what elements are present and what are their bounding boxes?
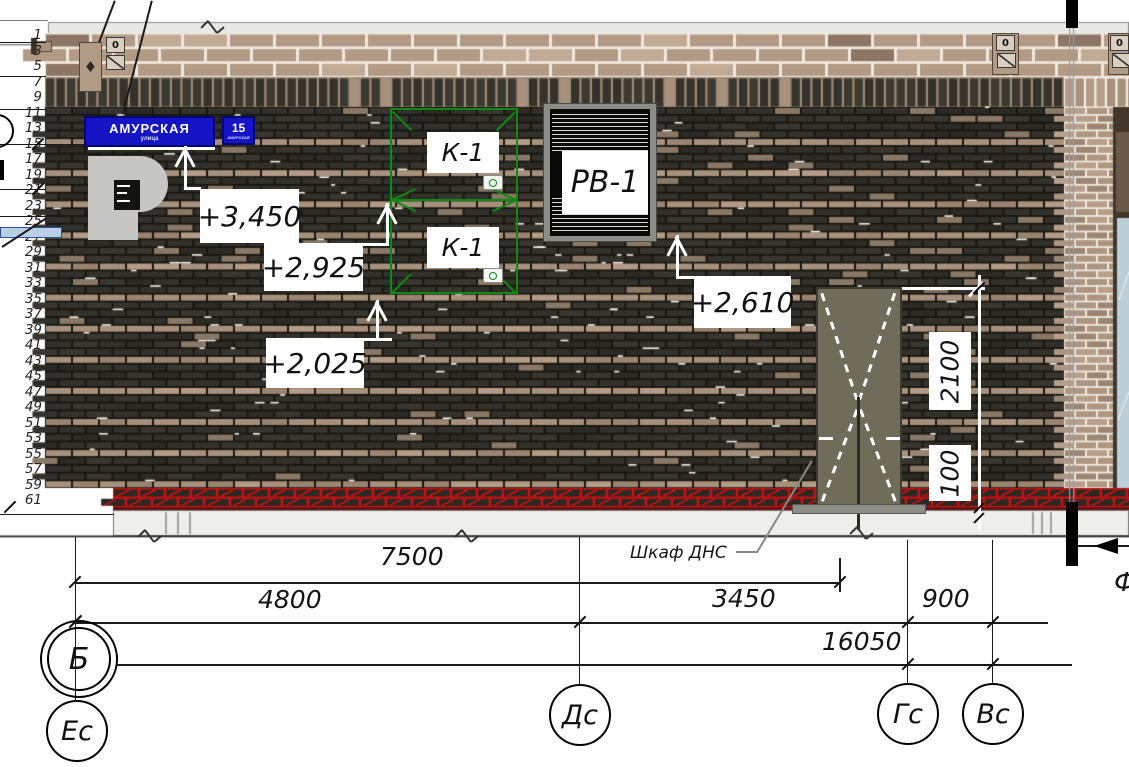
break-mark <box>455 527 479 543</box>
diagonal-marker-icon <box>1112 53 1129 68</box>
elev-leader <box>361 243 389 246</box>
zero-marker-label: 0 <box>1002 38 1009 49</box>
house-number-sign: 15 АМУРСКАЯ <box>222 116 255 145</box>
course-number: 39 <box>0 322 42 338</box>
house-number: 15 <box>232 121 245 135</box>
cabinet-handle-mark <box>819 437 833 440</box>
zero-marker-box: 0 <box>106 37 125 53</box>
elevation-mark: +3,450 <box>200 189 299 243</box>
logo-text-line <box>117 200 130 202</box>
axis-bubble-es: Ес <box>46 700 108 762</box>
logo-inner-plate <box>114 180 140 210</box>
diagonal-marker-icon <box>997 53 1016 68</box>
dim-100: 100 <box>929 445 971 501</box>
break-mark <box>850 524 874 540</box>
dim-2100: 2100 <box>929 332 971 410</box>
trident-ornament-icon: ♦︎ <box>79 42 102 92</box>
street-sign-name: АМУРСКАЯ <box>109 121 190 136</box>
course-number: 1 <box>0 27 42 43</box>
axis-bubble-b: Б <box>47 627 111 691</box>
logo-text-line <box>117 192 127 194</box>
course-number: 45 <box>0 368 42 384</box>
level-line <box>0 20 48 21</box>
course-number: 5 <box>0 58 42 74</box>
fastener-chip <box>483 268 503 283</box>
elevation-mark: +2,925 <box>264 243 363 291</box>
dim-100-label: 100 <box>936 449 965 497</box>
elevation-mark: +2,025 <box>266 338 364 388</box>
cabinet-leader-label: Шкаф ДНС <box>630 543 727 563</box>
course-number: 33 <box>0 275 42 291</box>
logo-p-emblem <box>88 156 162 240</box>
course-number: 49 <box>0 399 42 415</box>
course-number: 55 <box>0 446 42 462</box>
logo-text-line <box>117 185 130 187</box>
k1-label-top: К-1 <box>427 132 499 173</box>
zero-marker-label: 0 <box>112 40 119 51</box>
course-number: 51 <box>0 415 42 431</box>
axis-bubble-vs: Вс <box>962 683 1024 745</box>
facade-elevation-drawing: 1357911131517192123252729313335373941434… <box>0 0 1129 767</box>
course-number: 59 <box>0 477 42 493</box>
cabinet-handle-mark <box>886 437 900 440</box>
section-arrow-icon <box>1094 538 1118 554</box>
brick-course-number-column: 1357911131517192123252729313335373941434… <box>0 0 42 520</box>
dim-extension <box>839 558 841 592</box>
dim-line-vertical <box>978 275 981 530</box>
dim-7500: 7500 <box>380 542 444 571</box>
course-number: 47 <box>0 384 42 400</box>
level-line <box>0 76 46 77</box>
course-number: 9 <box>0 89 42 105</box>
house-sign-sub: АМУРСКАЯ <box>227 135 249 140</box>
dim-4800: 4800 <box>258 585 322 614</box>
zero-marker-box: 0 <box>1110 35 1129 51</box>
dim-2100-label: 2100 <box>936 339 965 403</box>
axis-line-gs <box>907 540 908 684</box>
course-number: 35 <box>0 291 42 307</box>
edge-tick <box>0 160 4 180</box>
course-number: 57 <box>0 461 42 477</box>
vent-label: РВ-1 <box>562 151 648 214</box>
level-line <box>0 42 46 43</box>
k1-label-bottom: К-1 <box>427 227 499 268</box>
zero-marker-box: 0 <box>996 35 1015 51</box>
course-number: 23 <box>0 198 42 214</box>
course-number: 43 <box>0 353 42 369</box>
axis-line-ds <box>579 537 580 685</box>
zero-marker-label: 0 <box>1116 38 1123 49</box>
street-sign-sub: улица <box>141 136 159 142</box>
dim-16050: 16050 <box>822 627 902 656</box>
course-number: 19 <box>0 167 42 183</box>
axis-bubble-gs: Гс <box>877 683 939 745</box>
elev-leader <box>363 338 392 341</box>
axis-line-vs <box>992 540 993 684</box>
elev-leader <box>184 187 201 190</box>
course-number: 41 <box>0 337 42 353</box>
cabinet-base-plate <box>792 504 926 514</box>
break-mark <box>138 527 162 543</box>
axis-bubble-ds: Дс <box>549 684 611 746</box>
break-mark <box>201 18 225 34</box>
fastener-chip <box>483 175 503 190</box>
elevation-mark: +2,610 <box>694 276 791 328</box>
dim-3450: 3450 <box>712 584 776 613</box>
level-line <box>0 514 114 515</box>
street-name-sign: АМУРСКАЯ улица <box>84 116 215 147</box>
elev-leader <box>676 276 695 279</box>
course-number: 17 <box>0 151 42 167</box>
course-number: 37 <box>0 306 42 322</box>
section-mark-top <box>1066 0 1078 28</box>
sign-underline <box>88 147 215 150</box>
course-number: 61 <box>0 492 42 508</box>
section-mark-bottom <box>1066 502 1078 566</box>
course-number: 3 <box>0 43 42 59</box>
k1-frame-midline <box>390 199 518 201</box>
dim-line-16050 <box>117 664 1072 666</box>
course-number: 29 <box>0 244 42 260</box>
course-number: 53 <box>0 430 42 446</box>
axis-label-f: Ф <box>1114 568 1129 598</box>
course-number: 31 <box>0 260 42 276</box>
diagonal-marker-icon <box>106 55 125 70</box>
vent-louvers <box>552 111 648 153</box>
dim-line-4800 <box>75 622 1048 624</box>
leader-line <box>736 551 758 553</box>
level-line <box>0 109 46 110</box>
dim-900: 900 <box>922 584 970 613</box>
level-line <box>0 144 85 145</box>
